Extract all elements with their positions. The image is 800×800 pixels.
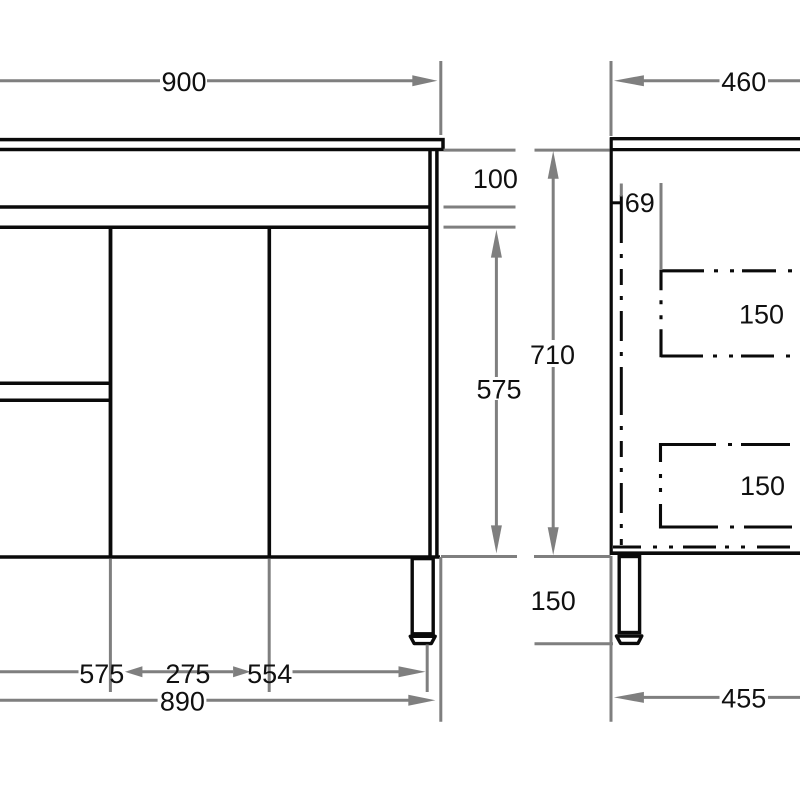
svg-text:150: 150 [531, 586, 576, 616]
svg-text:69: 69 [625, 188, 655, 218]
svg-text:575: 575 [476, 374, 521, 404]
svg-text:455: 455 [721, 683, 766, 713]
svg-text:150: 150 [740, 471, 785, 501]
svg-text:710: 710 [530, 340, 575, 370]
svg-text:890: 890 [160, 687, 205, 717]
svg-text:900: 900 [161, 67, 206, 97]
svg-text:100: 100 [473, 164, 518, 194]
svg-text:460: 460 [721, 67, 766, 97]
svg-text:554: 554 [247, 659, 292, 689]
svg-text:150: 150 [739, 299, 784, 329]
svg-text:275: 275 [165, 659, 210, 689]
svg-text:575: 575 [79, 659, 124, 689]
